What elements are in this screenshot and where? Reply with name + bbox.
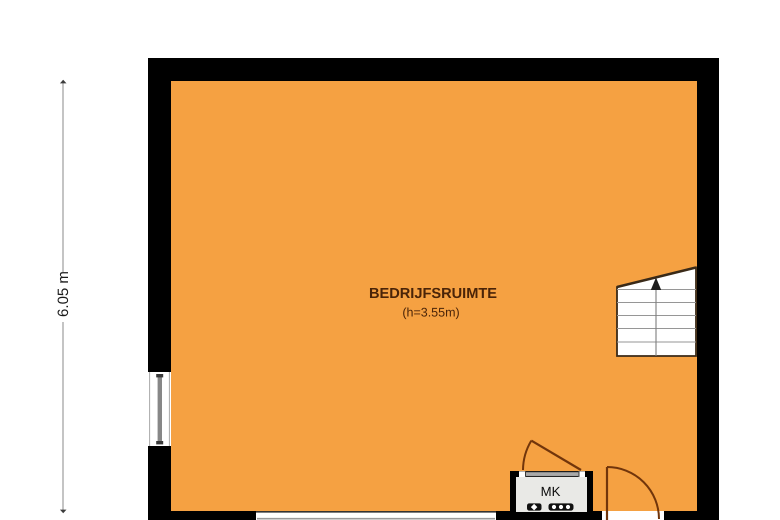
svg-text:6.05 m: 6.05 m	[55, 271, 72, 317]
svg-text:MK: MK	[541, 484, 561, 499]
svg-text:BEDRIJFSRUIMTE: BEDRIJFSRUIMTE	[369, 286, 497, 302]
svg-text:(h=3.55m): (h=3.55m)	[402, 306, 459, 320]
